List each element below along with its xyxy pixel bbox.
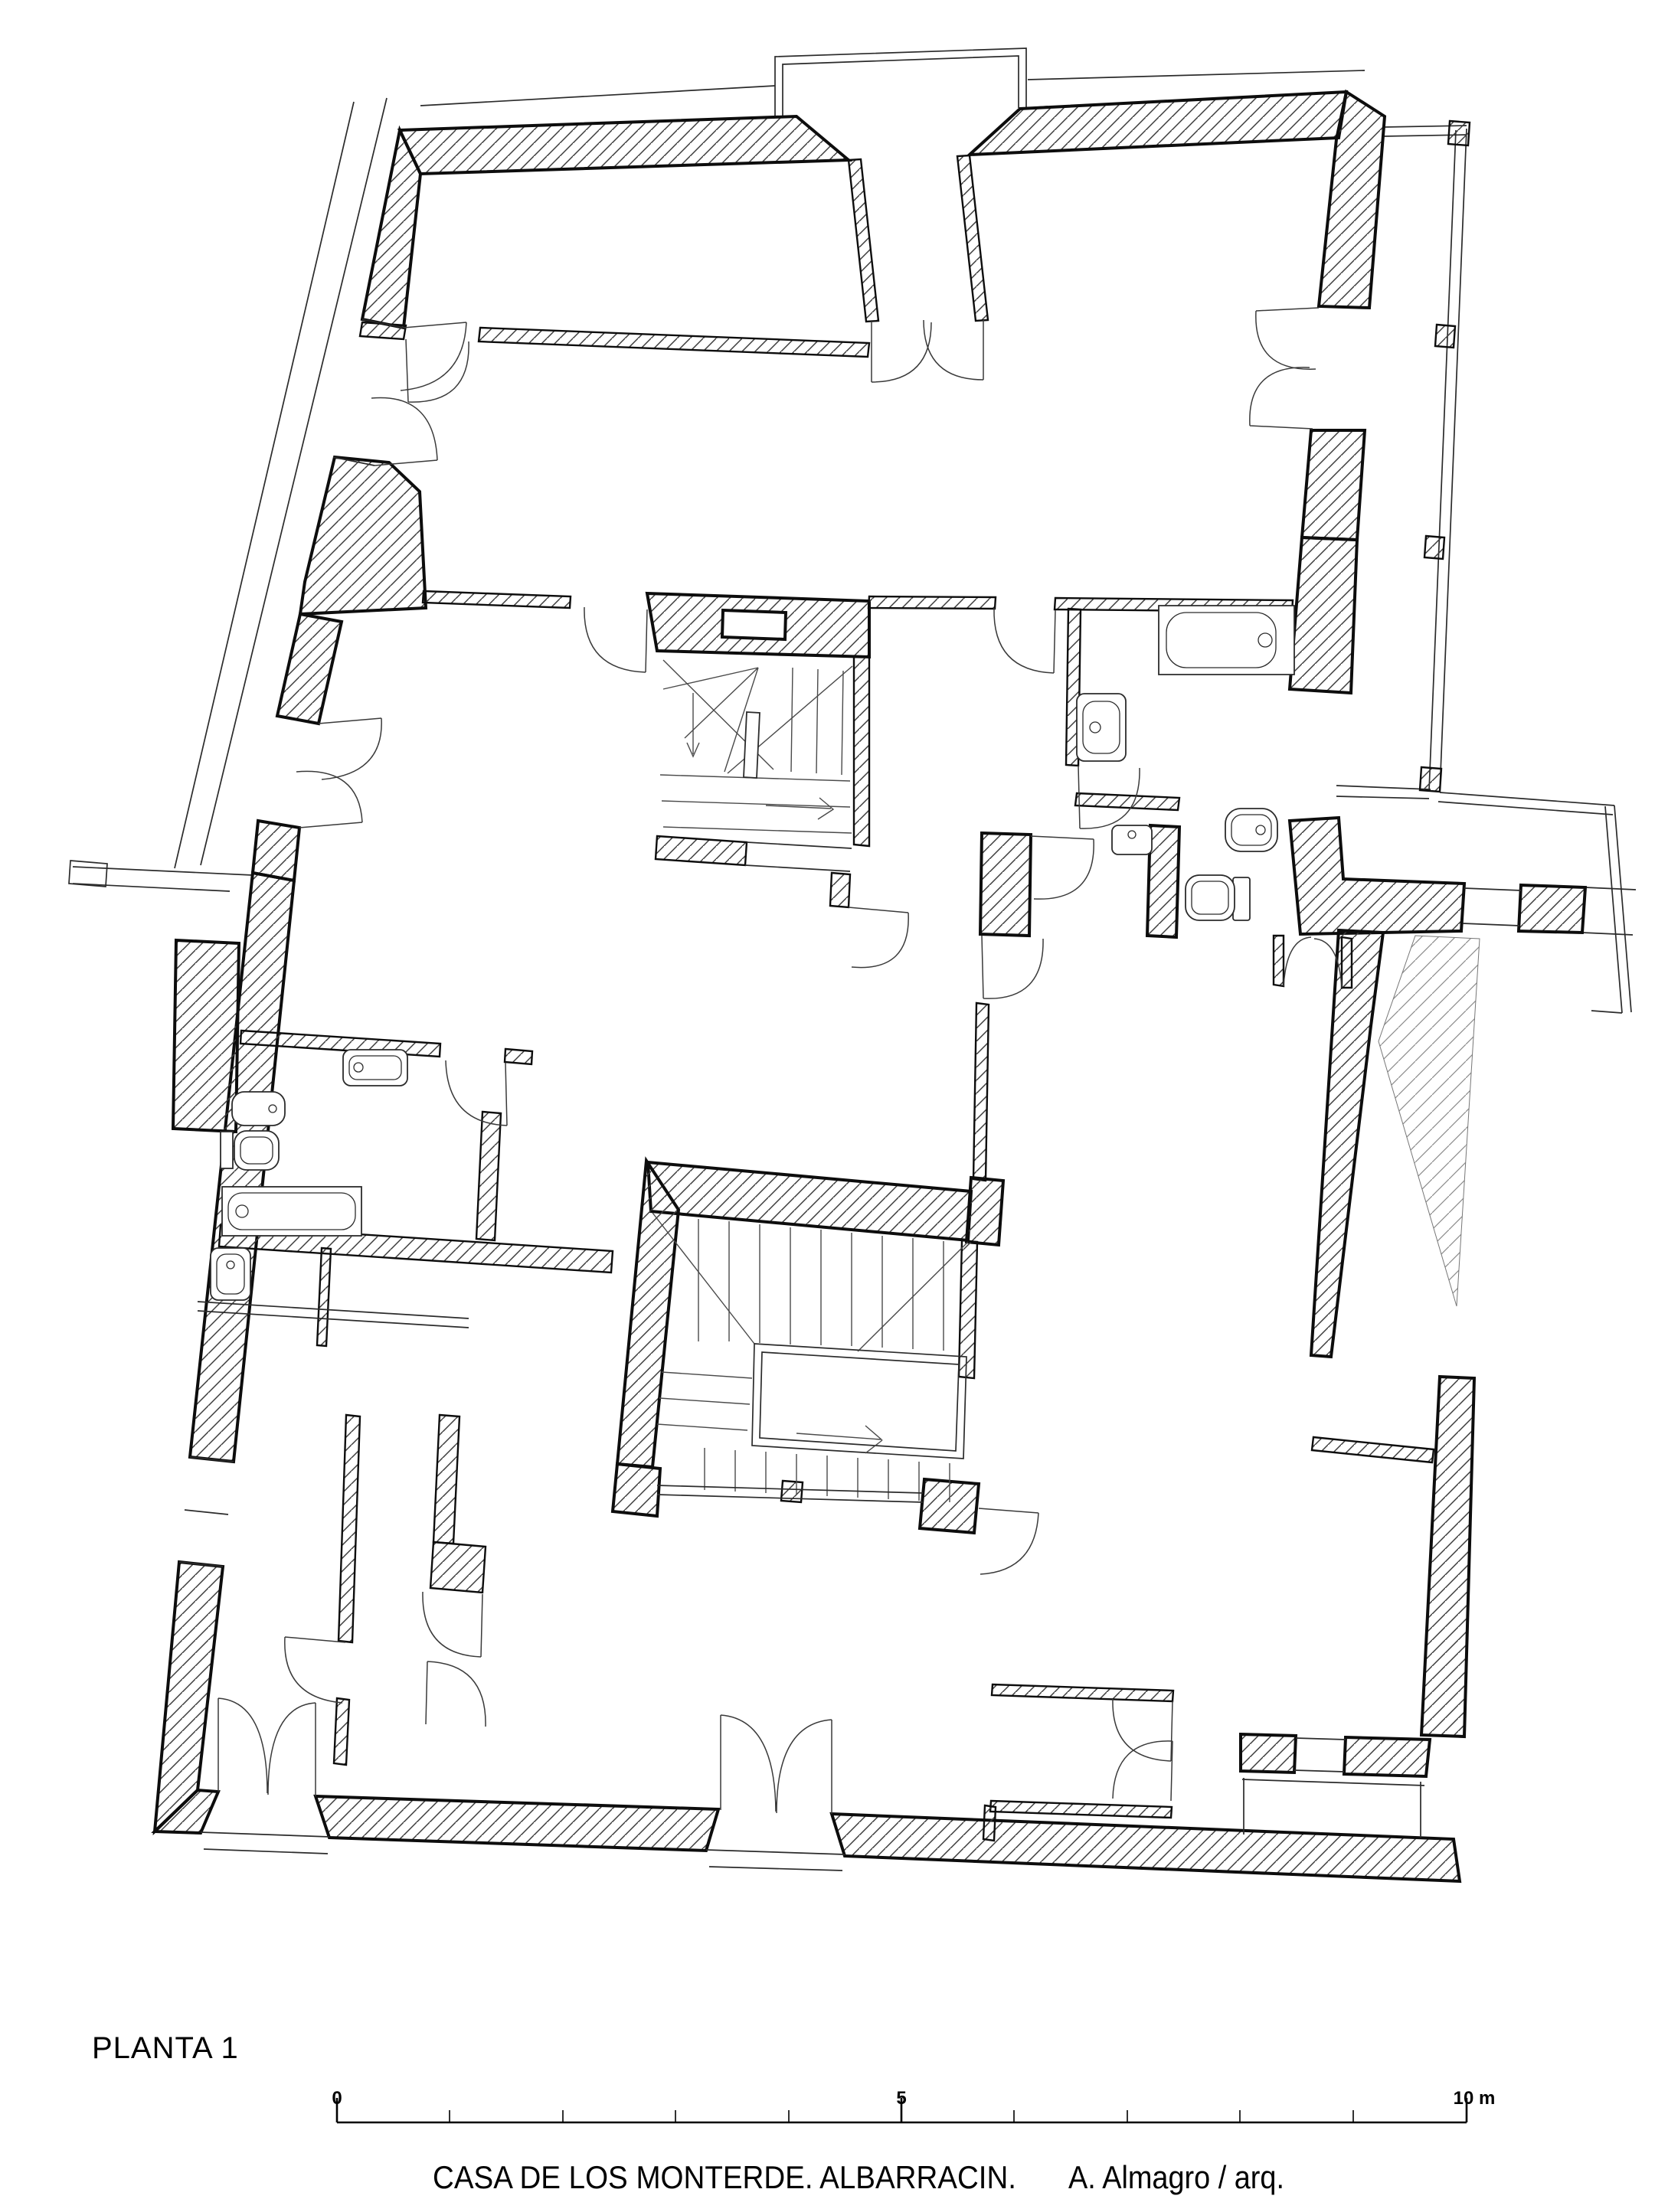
sheet: PLANTA 1 0 5 10 m CASA DE LOS MONTERDE. … — [0, 0, 1668, 2212]
exterior-walls — [155, 92, 1585, 1881]
floor-plan-drawing: PLANTA 1 0 5 10 m CASA DE LOS MONTERDE. … — [0, 0, 1668, 2212]
west-balcony-door-lower — [371, 397, 437, 466]
main-staircase — [652, 1213, 968, 1502]
stair-corridor-door — [849, 907, 908, 968]
wc-north-door — [1031, 836, 1094, 899]
bottom-mid-door-lower — [426, 1661, 486, 1727]
toilet-icon — [221, 1131, 279, 1170]
buttress — [173, 940, 239, 1132]
sink-icon — [1077, 694, 1126, 761]
annotations: PLANTA 1 0 5 10 m CASA DE LOS MONTERDE. … — [92, 2031, 1495, 2195]
scale-ten-label: 10 m — [1454, 2088, 1496, 2109]
hall-gallery-door-lower — [1250, 368, 1313, 429]
entrance-door-left — [872, 322, 931, 382]
gallery-post — [1435, 325, 1455, 348]
sink-icon — [1112, 825, 1152, 854]
caption-author: A. Almagro / arq. — [1068, 2159, 1284, 2195]
stair-handrail — [744, 712, 760, 778]
stair-arrow-right — [766, 798, 833, 819]
room-a-door — [406, 339, 469, 402]
stair-arrow-down — [687, 693, 699, 756]
bidet-icon — [232, 1092, 285, 1126]
stairwell-southeast-door — [979, 1508, 1038, 1574]
west-double-door-lower — [296, 771, 362, 828]
bathtub-icon — [1159, 606, 1294, 675]
bathtub-icon — [222, 1187, 361, 1236]
west-balcony-door-upper — [401, 322, 466, 390]
bidet-icon — [1225, 809, 1277, 851]
wc-south-door — [982, 936, 1043, 998]
gallery-post — [1420, 767, 1441, 792]
party-wall-hatch — [1379, 936, 1480, 1306]
gallery-post — [1424, 536, 1444, 559]
hall-gallery-door-upper — [1256, 308, 1319, 369]
balcony-top — [754, 48, 1048, 119]
bottom-mid-door-upper — [423, 1592, 482, 1657]
wall-niche — [722, 610, 786, 639]
site-context-lines — [69, 70, 1365, 891]
gallery-post — [1448, 121, 1470, 145]
floor-label: PLANTA 1 — [92, 2031, 239, 2065]
interior-walls — [219, 155, 1434, 1841]
scale-five-label: 5 — [896, 2088, 906, 2109]
hall-south-door-west — [584, 607, 647, 672]
caption-project: CASA DE LOS MONTERDE. ALBARRACIN. — [433, 2159, 1016, 2195]
hall-south-door-east — [994, 608, 1055, 673]
street-double-door-center — [721, 1715, 832, 1814]
street-double-door-west — [218, 1698, 316, 1796]
west-double-door-upper — [319, 718, 381, 779]
entrance-door-right — [924, 320, 983, 380]
toilet-icon — [1186, 875, 1250, 920]
scale-zero-label: 0 — [332, 2088, 342, 2109]
east-room-double-door — [1284, 937, 1342, 988]
lobby-door-north — [1113, 1699, 1173, 1761]
bottom-left-door — [285, 1637, 345, 1703]
sink-icon — [343, 1050, 407, 1086]
scale-bar: 0 5 10 m — [332, 2088, 1495, 2122]
sink-icon — [211, 1248, 250, 1300]
lobby-door-south — [1113, 1741, 1173, 1801]
